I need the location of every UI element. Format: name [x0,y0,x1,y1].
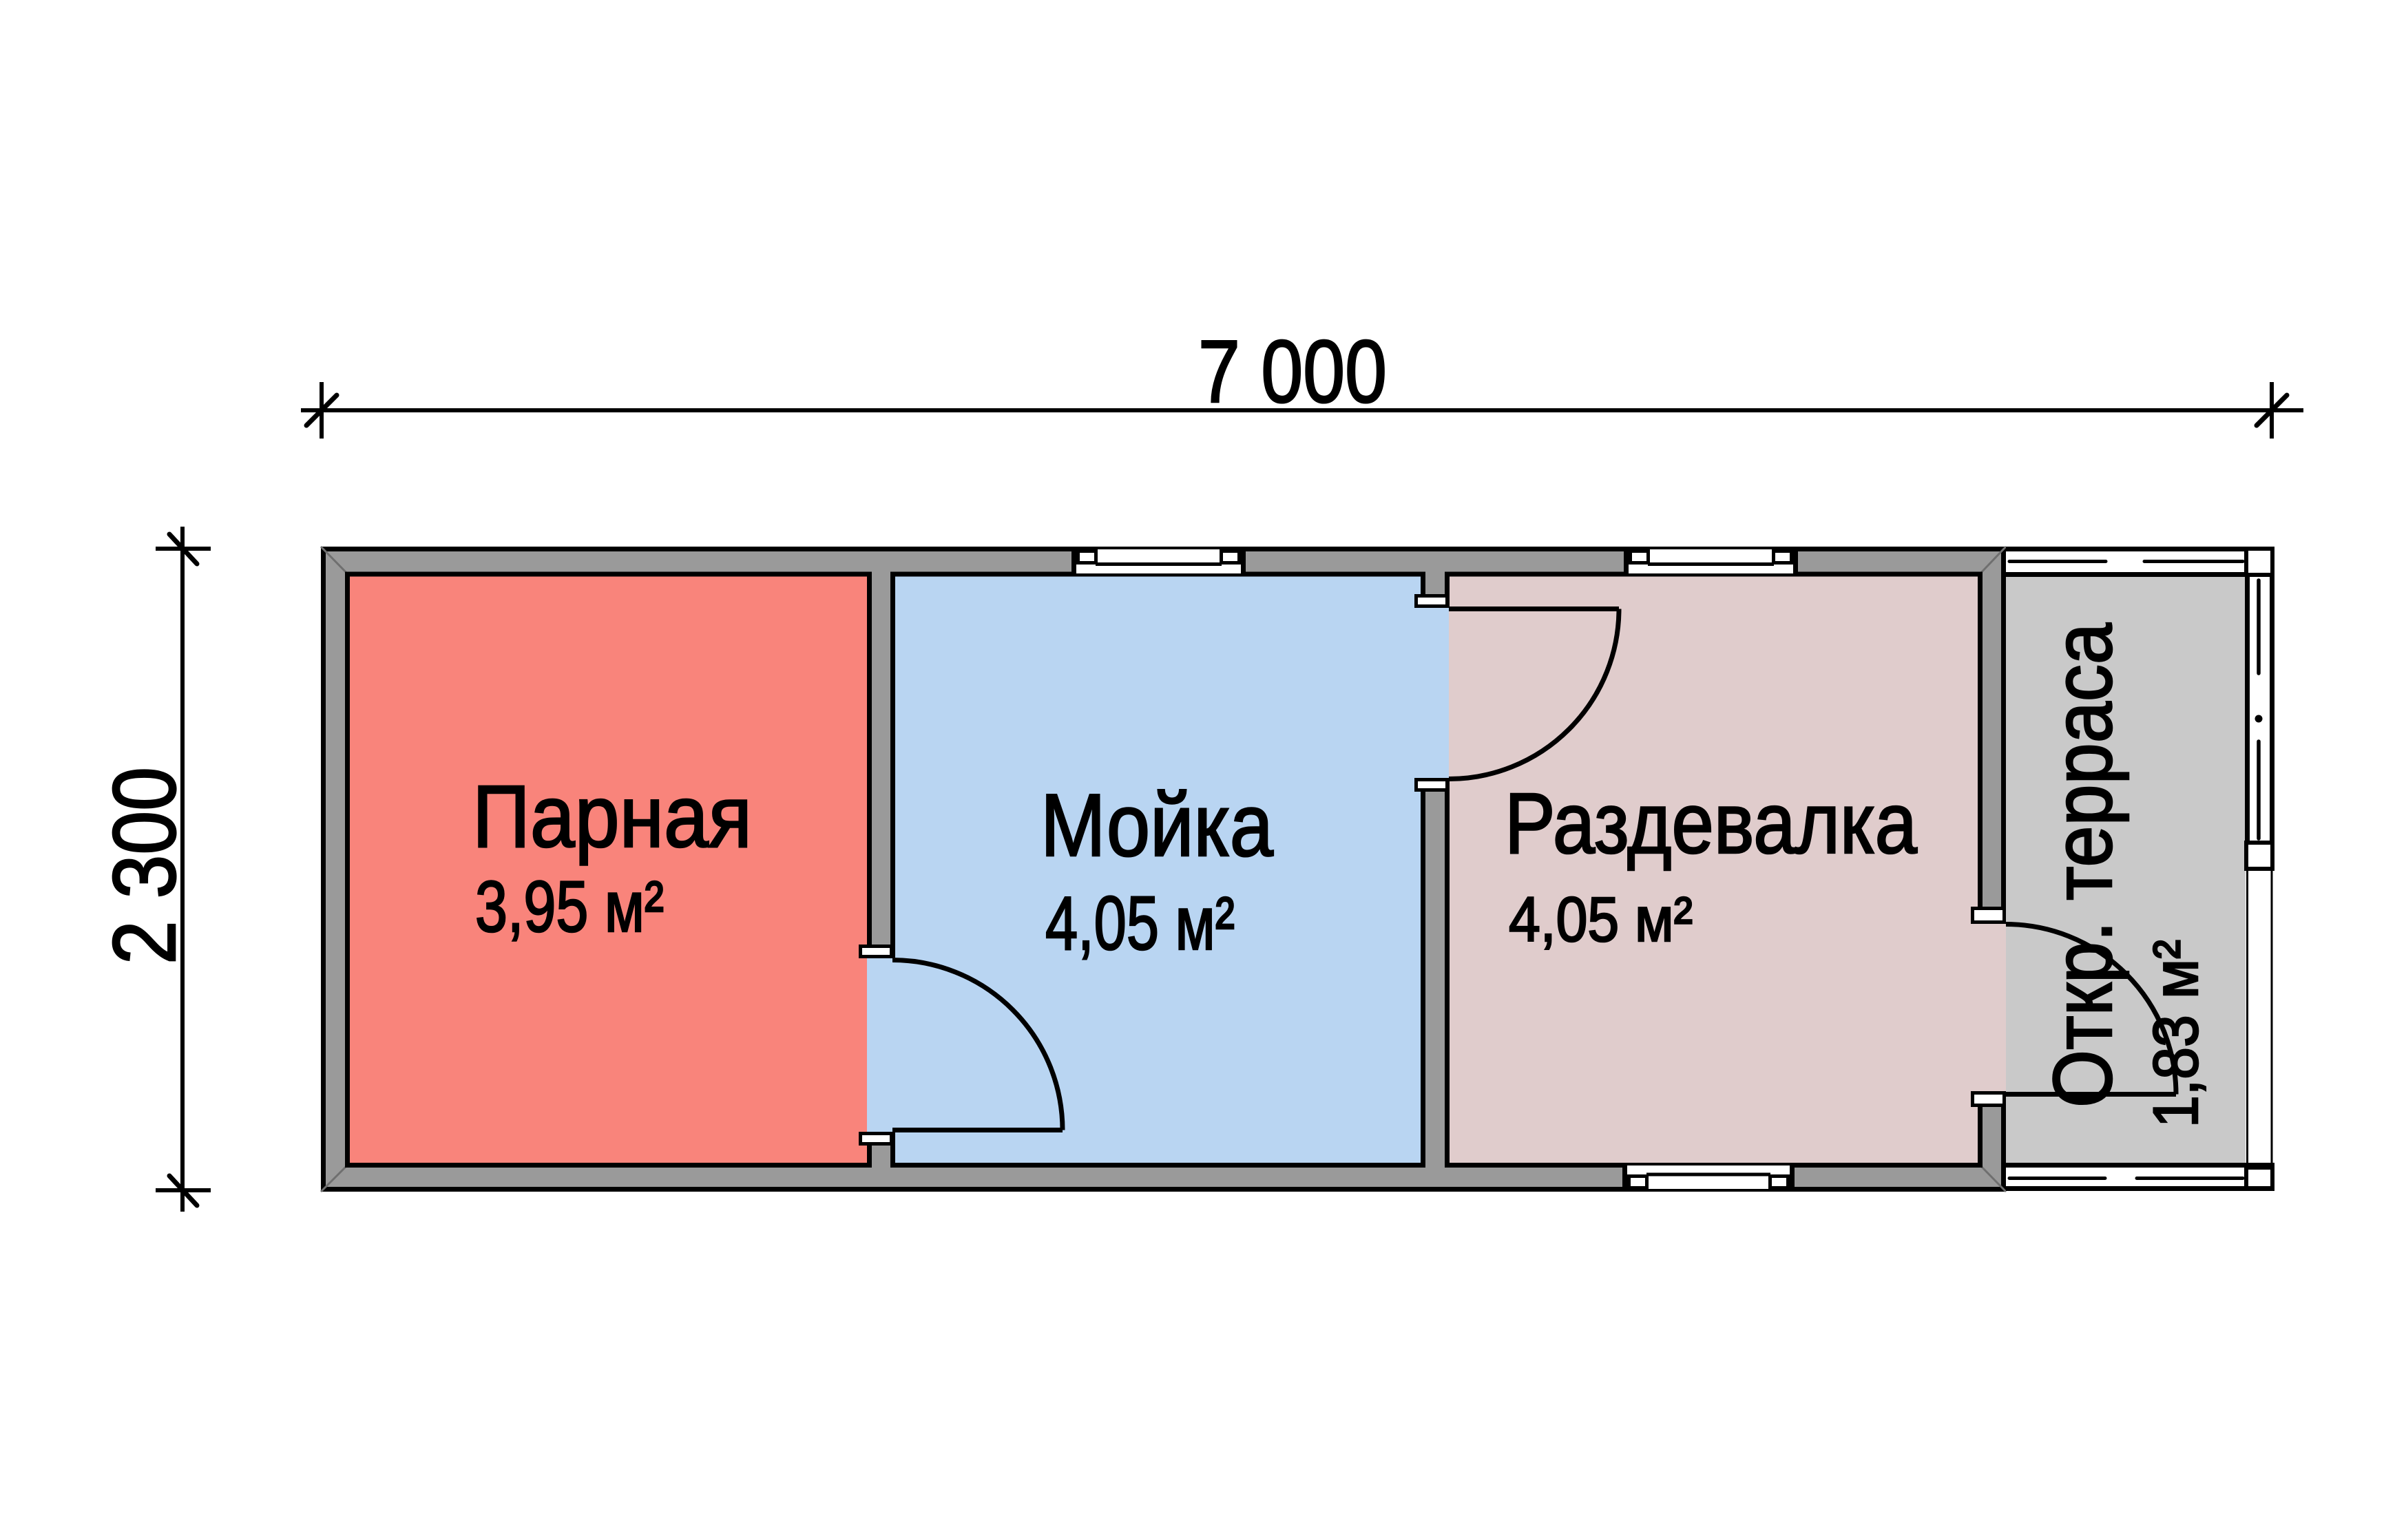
svg-text:Откр. терраса: Откр. терраса [2036,622,2129,1108]
svg-text:Мойка: Мойка [1040,776,1273,875]
svg-text:4,05 м²: 4,05 м² [1045,881,1235,966]
svg-text:Парная: Парная [472,768,752,866]
svg-text:2 300: 2 300 [95,767,194,964]
svg-text:7 000: 7 000 [1198,322,1387,421]
svg-text:3,95 м²: 3,95 м² [475,867,664,947]
svg-text:Раздевалка: Раздевалка [1505,776,1917,872]
svg-text:1,83 м²: 1,83 м² [2141,940,2211,1128]
svg-text:4,05 м²: 4,05 м² [1509,885,1693,955]
